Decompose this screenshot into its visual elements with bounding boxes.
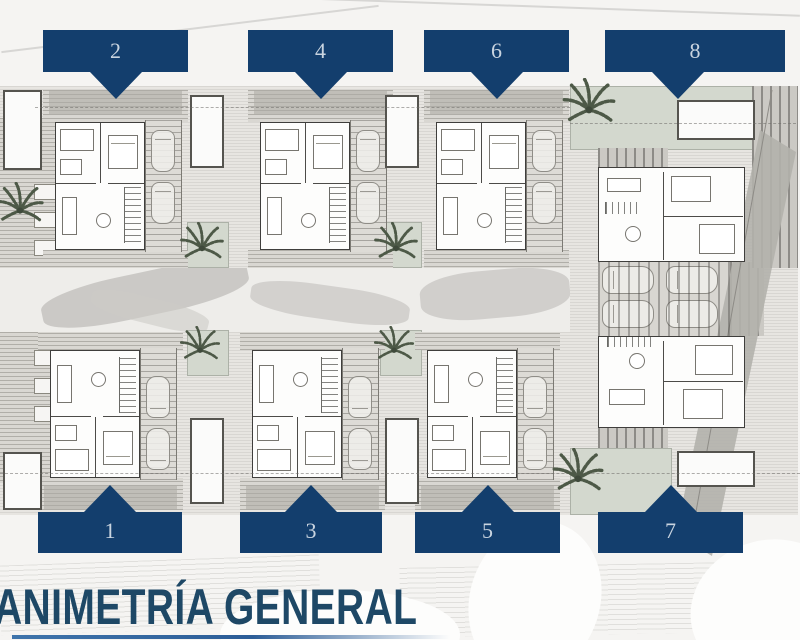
car-icon <box>356 182 380 224</box>
palm-tree-icon <box>0 182 46 234</box>
sofa-icon <box>259 365 274 403</box>
unit7-pool <box>677 451 755 487</box>
stairs-icon <box>329 187 346 243</box>
bed-icon <box>313 135 343 169</box>
sofa-icon <box>267 197 282 235</box>
sofa-icon <box>57 365 72 403</box>
bathroom-icon <box>55 425 77 441</box>
kitchen-icon <box>257 449 291 471</box>
table-icon <box>477 213 492 228</box>
palm-tree-icon <box>550 448 606 504</box>
pool <box>190 95 224 168</box>
unit-number: 6 <box>424 30 569 72</box>
unit-interior <box>50 350 140 478</box>
bed-icon <box>108 135 138 169</box>
driveway <box>140 348 177 480</box>
car-icon <box>532 130 556 172</box>
bed-icon <box>695 345 733 375</box>
pointer-arrow-icon <box>295 72 347 99</box>
palm-tree-icon <box>372 326 416 370</box>
driveway <box>517 348 554 480</box>
car-icon <box>146 376 170 418</box>
pointer-arrow-icon <box>90 72 142 99</box>
interior-wall <box>437 183 477 184</box>
unit-number: 8 <box>605 30 785 72</box>
car-icon <box>151 130 175 172</box>
unit-floorplan-6 <box>424 90 569 268</box>
sofa-icon <box>434 365 449 403</box>
interior-wall <box>100 123 101 183</box>
sofa-icon <box>443 197 458 235</box>
bed-pillow-line <box>111 143 135 144</box>
driveway <box>526 120 563 252</box>
stairs-icon <box>505 187 522 243</box>
bed-pillow-line <box>308 456 332 457</box>
interior-wall <box>663 216 743 217</box>
unit-number: 2 <box>43 30 188 72</box>
bed-icon <box>480 431 510 465</box>
page-title: ANIMETRÍA GENERAL <box>0 582 417 632</box>
interior-wall <box>313 183 349 184</box>
pointer-arrow-icon <box>84 485 136 512</box>
car-icon <box>348 428 372 470</box>
pointer-arrow-icon <box>645 485 697 512</box>
bathroom-icon <box>441 159 463 175</box>
bed-icon <box>699 224 735 254</box>
table-icon <box>96 213 111 228</box>
kitchen-icon <box>55 449 89 471</box>
unit-interior <box>436 122 526 250</box>
table-icon <box>468 372 483 387</box>
car-icon <box>523 428 547 470</box>
stairs-icon <box>607 337 652 347</box>
car-icon <box>523 376 547 418</box>
table-icon <box>91 372 106 387</box>
car-icon <box>151 182 175 224</box>
unit-marker-7[interactable]: 7 <box>598 512 743 553</box>
unit-number: 5 <box>415 512 560 550</box>
pointer-arrow-icon <box>285 485 337 512</box>
interior-wall <box>261 183 301 184</box>
interior-wall <box>305 123 306 183</box>
pool <box>3 452 42 510</box>
kitchen-icon <box>441 129 475 151</box>
survey-dash-line <box>35 107 570 108</box>
bed-icon <box>489 135 519 169</box>
car-icon <box>146 428 170 470</box>
unit-floorplan-2 <box>43 90 188 268</box>
car-icon <box>532 182 556 224</box>
pool <box>190 418 224 504</box>
survey-dash-line <box>0 473 800 474</box>
rear-terrace <box>43 250 188 268</box>
bathroom-icon <box>265 159 287 175</box>
unit-floorplan-3 <box>240 332 385 510</box>
pool <box>385 95 419 168</box>
palm-tree-icon <box>560 78 618 136</box>
stairs-icon <box>124 187 141 243</box>
interior-wall <box>305 416 341 417</box>
unit-interior <box>252 350 342 478</box>
interior-wall <box>428 416 468 417</box>
sofa-icon <box>607 178 641 192</box>
unit-number: 3 <box>240 512 382 550</box>
unit-number: 7 <box>598 512 743 550</box>
carport-roof-slats <box>598 262 730 336</box>
stairs-icon <box>119 357 136 413</box>
pool <box>3 90 42 170</box>
kitchen-icon <box>671 176 711 202</box>
kitchen-icon <box>60 129 94 151</box>
kitchen-icon <box>265 129 299 151</box>
pointer-arrow-icon <box>652 72 704 99</box>
unit-marker-8[interactable]: 8 <box>605 30 785 72</box>
interior-wall <box>663 381 743 382</box>
palm-tree-icon <box>178 222 226 270</box>
table-icon <box>301 213 316 228</box>
unit-interior <box>55 122 145 250</box>
unit-number: 4 <box>248 30 393 72</box>
unit-marker-5[interactable]: 5 <box>415 512 560 553</box>
unit-interior <box>427 350 517 478</box>
interior-wall <box>108 183 144 184</box>
planimetria-page: 2 4 6 8 1 3 5 7 ANIMETRÍA GENERAL <box>0 0 800 640</box>
stairs-icon <box>321 357 338 413</box>
bed-pillow-line <box>483 456 507 457</box>
pointer-arrow-icon <box>471 72 523 99</box>
unit-marker-4[interactable]: 4 <box>248 30 393 72</box>
unit-marker-3[interactable]: 3 <box>240 512 382 553</box>
rear-terrace <box>424 250 569 268</box>
palm-tree-icon <box>178 326 222 370</box>
bathroom-icon <box>60 159 82 175</box>
bed-icon <box>103 431 133 465</box>
unit8-pool <box>677 100 755 140</box>
stairs-icon <box>496 357 513 413</box>
car-icon <box>348 376 372 418</box>
interior-wall <box>297 417 298 477</box>
bed-pillow-line <box>106 456 130 457</box>
unit-marker-1[interactable]: 1 <box>38 512 182 553</box>
interior-wall <box>663 341 664 425</box>
sofa-icon <box>62 197 77 235</box>
unit8-floorplan <box>598 167 745 262</box>
interior-wall <box>51 416 91 417</box>
unit-floorplan-5 <box>415 332 560 510</box>
table-icon <box>625 226 641 242</box>
unit-number: 1 <box>38 512 182 550</box>
driveway <box>145 120 182 252</box>
bathroom-icon <box>432 425 454 441</box>
palm-tree-icon <box>372 222 420 270</box>
pointer-arrow-icon <box>462 485 514 512</box>
sofa-icon <box>609 389 645 405</box>
bathroom-icon <box>257 425 279 441</box>
interior-wall <box>56 183 96 184</box>
unit-marker-6[interactable]: 6 <box>424 30 569 72</box>
bed-pillow-line <box>492 143 516 144</box>
car-icon <box>356 130 380 172</box>
unit-floorplan-1 <box>38 332 183 510</box>
interior-wall <box>489 183 525 184</box>
title-underline <box>12 635 450 639</box>
interior-wall <box>472 417 473 477</box>
interior-wall <box>481 123 482 183</box>
unit-marker-2[interactable]: 2 <box>43 30 188 72</box>
stairs-icon <box>605 202 640 214</box>
kitchen-icon <box>432 449 466 471</box>
interior-wall <box>480 416 516 417</box>
interior-wall <box>95 417 96 477</box>
unit-interior <box>260 122 350 250</box>
interior-wall <box>103 416 139 417</box>
table-icon <box>293 372 308 387</box>
interior-wall <box>253 416 293 417</box>
unit7-floorplan <box>598 336 745 428</box>
bed-pillow-line <box>316 143 340 144</box>
bed-icon <box>305 431 335 465</box>
table-icon <box>629 353 645 369</box>
pool <box>385 418 419 504</box>
kitchen-icon <box>683 389 723 419</box>
